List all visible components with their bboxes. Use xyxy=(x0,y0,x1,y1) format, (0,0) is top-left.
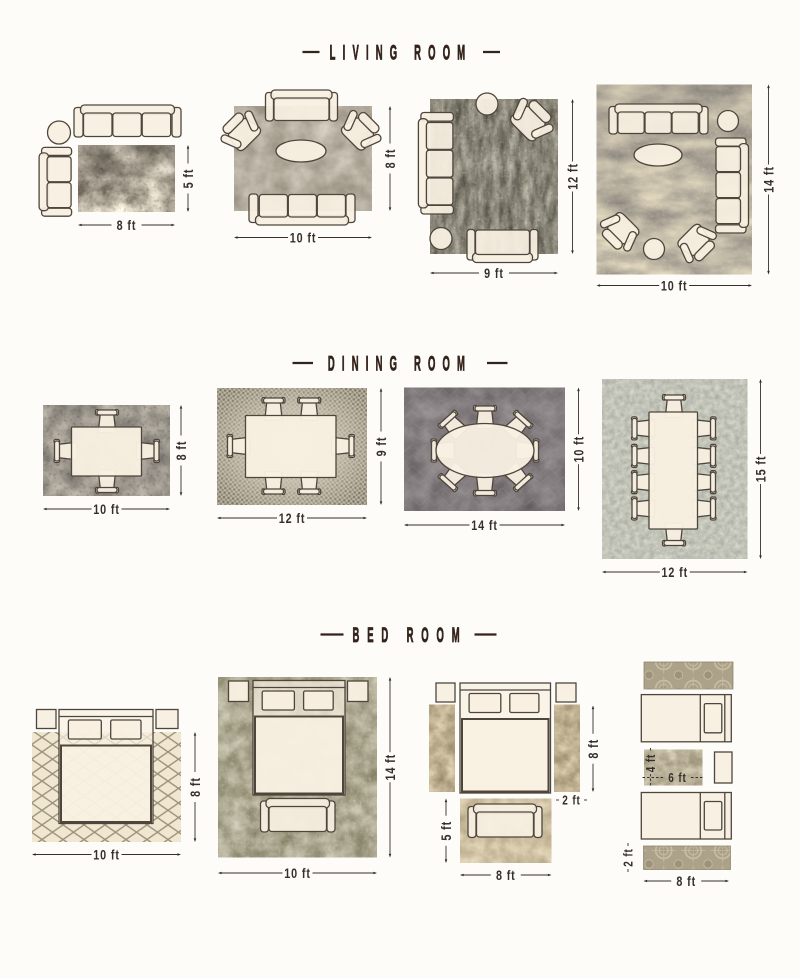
svg-text:10 ft: 10 ft xyxy=(571,436,586,463)
svg-text:DINING ROOM: DINING ROOM xyxy=(328,352,472,375)
svg-text:8 ft: 8 ft xyxy=(174,441,189,461)
svg-text:10 ft: 10 ft xyxy=(93,502,120,517)
svg-text:10 ft: 10 ft xyxy=(284,866,311,881)
svg-text:14 ft: 14 ft xyxy=(471,518,498,533)
svg-text:9 ft: 9 ft xyxy=(374,437,389,457)
svg-text:8 ft: 8 ft xyxy=(496,868,516,883)
svg-text:2 ft: 2 ft xyxy=(562,795,580,808)
svg-text:5 ft: 5 ft xyxy=(439,821,454,841)
svg-text:15 ft: 15 ft xyxy=(753,456,768,483)
svg-text:8 ft: 8 ft xyxy=(676,874,696,889)
svg-text:8 ft: 8 ft xyxy=(383,149,398,169)
svg-text:12 ft: 12 ft xyxy=(279,511,306,526)
svg-text:8 ft: 8 ft xyxy=(586,739,601,759)
svg-text:10 ft: 10 ft xyxy=(661,278,688,293)
svg-text:12 ft: 12 ft xyxy=(661,565,688,580)
svg-text:4 ft: 4 ft xyxy=(645,754,658,772)
svg-text:14 ft: 14 ft xyxy=(383,754,398,781)
svg-text:9 ft: 9 ft xyxy=(484,266,504,281)
svg-text:14 ft: 14 ft xyxy=(761,166,776,193)
svg-text:5 ft: 5 ft xyxy=(181,169,196,189)
svg-text:2 ft: 2 ft xyxy=(623,848,636,866)
svg-text:LIVING ROOM: LIVING ROOM xyxy=(330,41,473,64)
svg-text:8 ft: 8 ft xyxy=(117,218,137,233)
svg-text:6 ft: 6 ft xyxy=(668,772,686,785)
svg-text:8 ft: 8 ft xyxy=(188,777,203,797)
svg-text:BED ROOM: BED ROOM xyxy=(353,624,468,647)
svg-text:12 ft: 12 ft xyxy=(565,163,580,190)
svg-text:10 ft: 10 ft xyxy=(93,847,120,862)
svg-text:10 ft: 10 ft xyxy=(290,230,317,245)
